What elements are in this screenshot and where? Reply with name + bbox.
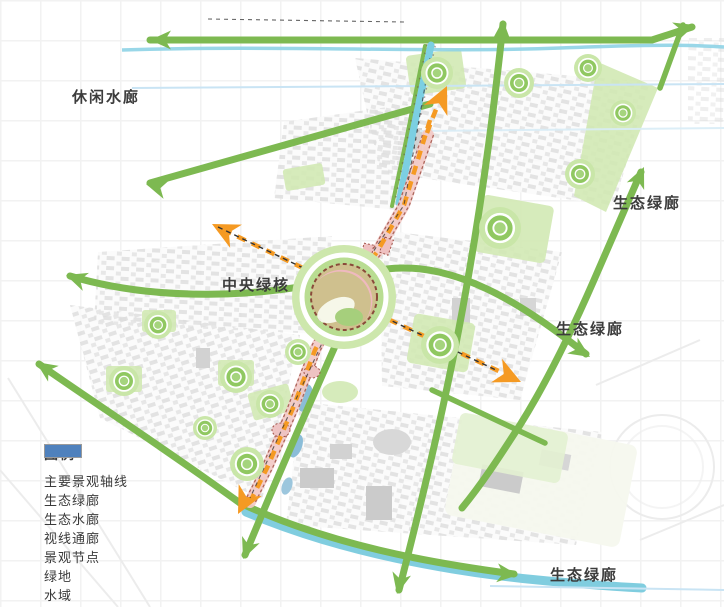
landscape-node [479, 207, 521, 249]
planning-map: 休闲水廊 中央绿核 生态绿廊 生态绿廊 生态绿廊 图例 主要景观轴线 生态绿廊 [0, 0, 724, 607]
legend-item-landscape-node: 景观节点 [44, 547, 128, 566]
legend-label: 水域 [44, 585, 72, 604]
label-eco-green-corridor-s: 生态绿廊 [550, 564, 618, 585]
landscape-node [144, 311, 172, 339]
landscape-node [610, 100, 636, 126]
legend-label: 生态水廊 [44, 509, 100, 528]
label-eco-green-corridor-e: 生态绿廊 [556, 318, 624, 339]
water-area-swatch-icon [44, 444, 82, 458]
landscape-node [193, 416, 217, 440]
legend-label: 生态绿廊 [44, 490, 100, 509]
legend-label: 景观节点 [44, 547, 100, 566]
landscape-node [421, 57, 453, 89]
label-central-green-core: 中央绿核 [222, 274, 290, 295]
legend-item-sight-corridor: 视线通廊 [44, 528, 128, 547]
legend-item-eco-water-corridor: 生态水廊 [44, 509, 128, 528]
label-eco-green-corridor-ne: 生态绿廊 [613, 192, 681, 213]
landscape-node [574, 54, 602, 82]
legend-item-main-axis: 主要景观轴线 [44, 471, 128, 490]
legend-label: 视线通廊 [44, 528, 100, 547]
legend-item-water-area: 水域 [44, 585, 128, 604]
landscape-node [285, 339, 311, 365]
legend-label: 绿地 [44, 566, 72, 585]
legend: 图例 主要景观轴线 生态绿廊 [44, 444, 128, 604]
landscape-node [504, 68, 534, 98]
landscape-node [220, 361, 252, 393]
legend-item-green-space: 绿地 [44, 566, 128, 585]
label-leisure-water-corridor: 休闲水廊 [72, 86, 140, 107]
landscape-node [565, 159, 595, 189]
landscape-node [109, 366, 139, 396]
legend-item-eco-green-corridor: 生态绿廊 [44, 490, 128, 509]
legend-label: 主要景观轴线 [44, 471, 128, 490]
landscape-node [421, 326, 459, 364]
central-green-core [292, 245, 396, 349]
landscape-node [230, 447, 264, 481]
landscape-node [256, 390, 284, 418]
